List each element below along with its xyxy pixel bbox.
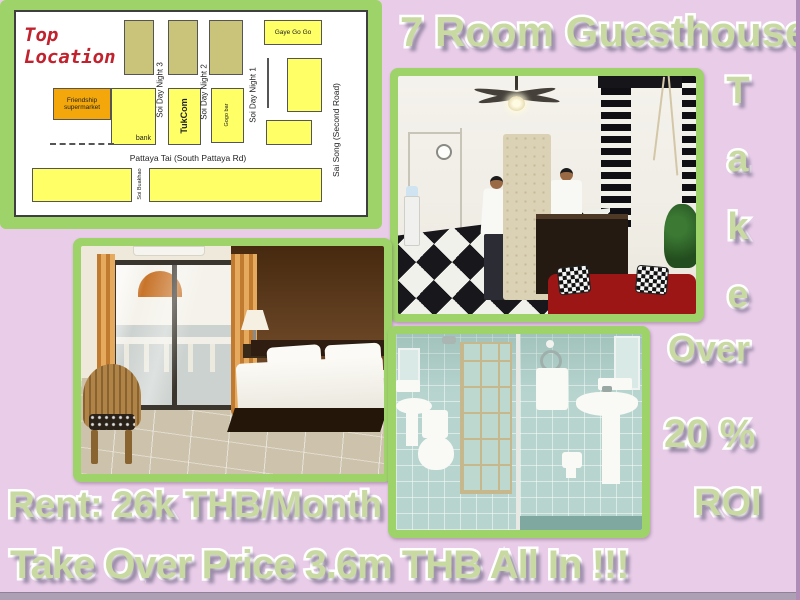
hanging-cord [658,76,679,176]
map-title-line1: Top [24,24,116,46]
map-road-segment [267,58,269,108]
gogo-bar-label: Gogo bar [224,104,230,127]
map-block-gaye-go-go: Gaye Go Go [264,20,322,45]
take-letter-a: a [727,138,748,181]
staff-right-shirt [550,180,582,218]
map-block-friendship-supermarket: Friendship supermarket [53,88,111,120]
wall-clock [436,144,452,160]
soi-day-night-2-label: Soi Day Night 2 [200,64,209,120]
friendship-label: Friendship supermarket [54,89,110,119]
soi-buakhao-label: Soi Buakhao [137,168,143,199]
sink-pedestal-right [602,414,620,484]
headline-title: 7 Room Guesthouse [400,8,800,56]
right-edge-strip [796,0,800,600]
toilet-tank [422,410,448,438]
toilet-paper-sheet [566,466,576,478]
pattaya-tai-label: Pattaya Tai (South Pattaya Rd) [130,153,247,163]
map-frame: Top Location Gaye Go Go Friendship super… [0,0,382,229]
tukcom-label: TukCom [179,98,189,133]
wicker-chair-leg [91,430,98,464]
roi-text: ROI [694,482,762,525]
bank-label: bank [136,135,151,142]
sink-pedestal-left [406,412,418,446]
map-block-right-tall [287,58,322,112]
glass-block-wall [460,342,512,494]
map-block-bottom-right [149,168,322,202]
take-letter-k: k [727,206,748,249]
friendship-label-line1: Friendship [67,97,97,105]
bathroom-left-view [396,334,516,530]
window-shutters-right [682,76,696,204]
soi-day-night-1-label: Soi Day Night 1 [249,67,258,123]
rent-text: Rent: 26k THB/Month [8,484,382,526]
over-text: Over [668,328,750,370]
take-letter-e: e [727,274,748,317]
map-block-bank: bank [111,88,156,145]
bathroom-photo [396,334,642,530]
bottom-edge-strip [0,592,800,600]
water-cooler [404,196,420,246]
staff-left-head [490,176,503,189]
reception-photo [398,76,696,314]
map-title: Top Location [24,24,116,68]
sai-song-label: Sai Song (Second Road) [331,83,341,177]
take-letter-t: T [726,70,749,113]
toilet-bowl [418,436,454,470]
towel-rolls [396,380,420,392]
map-block-bottom-left [32,168,132,202]
wicker-chair-leg [125,430,132,464]
map-block-olive-3 [209,20,243,75]
bathroom-floor [520,516,642,530]
bathroom-photo-frame [388,326,650,538]
price-text: Take Over Price 3.6m THB All In !!! [10,543,629,588]
hand-towel [536,368,568,410]
location-map: Top Location Gaye Go Go Friendship super… [14,10,368,217]
bed-base [227,408,384,432]
air-conditioner [133,246,205,256]
ceiling-fan-rod [515,76,518,90]
bathroom-right-view [520,334,642,530]
ceiling-fan-light [508,96,525,111]
roi-percent-text: 20 % [664,412,755,457]
bedroom-photo-frame [73,238,392,482]
wicker-chair-cushion [89,414,135,430]
map-block-right-small [266,120,312,145]
vertical-take-word: T a k e [712,70,764,317]
map-dashed-road [50,143,114,145]
bedroom-photo [81,246,384,474]
hallway-lintel [408,132,462,134]
sink-basin-right [576,392,638,416]
towel-hook [546,340,554,348]
reception-photo-frame [390,68,704,322]
friendship-label-line2: supermarket [64,104,100,112]
patterned-pillow [635,265,669,296]
map-block-olive-2 [168,20,198,75]
patterned-pillow [557,264,592,295]
map-block-olive-1 [124,20,154,75]
gaye-go-go-label: Gaye Go Go [265,21,321,44]
shower-fixture [442,336,456,344]
soi-day-night-3-label: Soi Day Night 3 [156,62,165,118]
potted-plant [664,204,696,268]
map-title-line2: Location [24,46,116,68]
